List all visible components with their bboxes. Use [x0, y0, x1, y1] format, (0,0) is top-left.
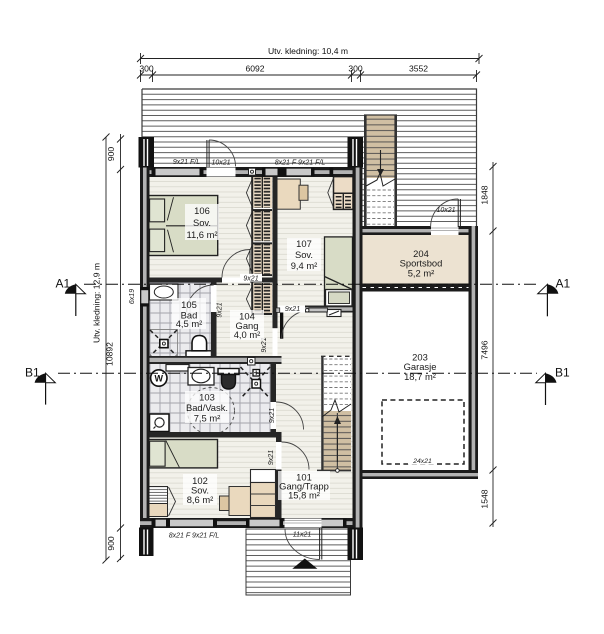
svg-text:107: 107: [296, 238, 312, 249]
svg-text:B1: B1: [25, 366, 40, 380]
svg-text:1848: 1848: [480, 185, 490, 204]
svg-text:Sov.: Sov.: [193, 217, 211, 228]
svg-text:11,6 m²: 11,6 m²: [186, 229, 217, 240]
svg-text:9x21 F/L: 9x21 F/L: [173, 159, 200, 166]
svg-text:9x21: 9x21: [217, 302, 224, 317]
svg-text:9,4 m²: 9,4 m²: [291, 260, 318, 271]
svg-text:A1: A1: [556, 277, 571, 291]
svg-text:W: W: [155, 374, 164, 384]
svg-text:900: 900: [106, 536, 116, 551]
svg-text:24x21: 24x21: [412, 458, 432, 465]
svg-text:900: 900: [106, 147, 116, 162]
svg-text:7,5 m²: 7,5 m²: [194, 413, 221, 424]
svg-text:18,7 m²: 18,7 m²: [404, 371, 436, 382]
svg-text:10x21: 10x21: [211, 160, 230, 167]
svg-text:4,0 m²: 4,0 m²: [234, 329, 261, 340]
svg-text:7496: 7496: [480, 340, 490, 359]
svg-text:9x21: 9x21: [285, 306, 300, 313]
svg-text:4,5 m²: 4,5 m²: [176, 318, 203, 329]
svg-text:Sov.: Sov.: [295, 249, 313, 260]
svg-text:8x21 F 9x21 F/L: 8x21 F 9x21 F/L: [275, 160, 326, 167]
svg-text:3552: 3552: [409, 64, 428, 74]
svg-text:Utv. kledning: 10,4 m: Utv. kledning: 10,4 m: [268, 46, 348, 56]
svg-text:A1: A1: [55, 277, 70, 291]
svg-text:10892: 10892: [105, 342, 115, 366]
svg-text:9x21: 9x21: [268, 450, 275, 465]
svg-text:105: 105: [181, 299, 197, 310]
svg-text:Utv. kledning: 12,9 m: Utv. kledning: 12,9 m: [92, 263, 102, 343]
svg-text:10x21: 10x21: [436, 207, 455, 214]
svg-text:6092: 6092: [245, 64, 264, 74]
svg-text:106: 106: [194, 205, 210, 216]
svg-text:1548: 1548: [480, 489, 490, 508]
svg-text:11x21: 11x21: [293, 532, 312, 539]
svg-text:8,6 m²: 8,6 m²: [187, 494, 214, 505]
svg-text:300: 300: [348, 64, 363, 74]
svg-text:Bad/Vask.: Bad/Vask.: [186, 402, 228, 413]
svg-text:103: 103: [199, 392, 215, 403]
svg-text:9x21: 9x21: [269, 408, 276, 423]
svg-text:5,2 m²: 5,2 m²: [408, 267, 435, 278]
svg-text:300: 300: [139, 64, 154, 74]
svg-text:B1: B1: [555, 366, 570, 380]
svg-text:6x19: 6x19: [129, 289, 136, 304]
svg-text:15,8 m²: 15,8 m²: [288, 490, 320, 501]
svg-text:9x21: 9x21: [243, 276, 258, 283]
svg-text:8x21 F 9x21 F/L: 8x21 F 9x21 F/L: [169, 533, 220, 540]
